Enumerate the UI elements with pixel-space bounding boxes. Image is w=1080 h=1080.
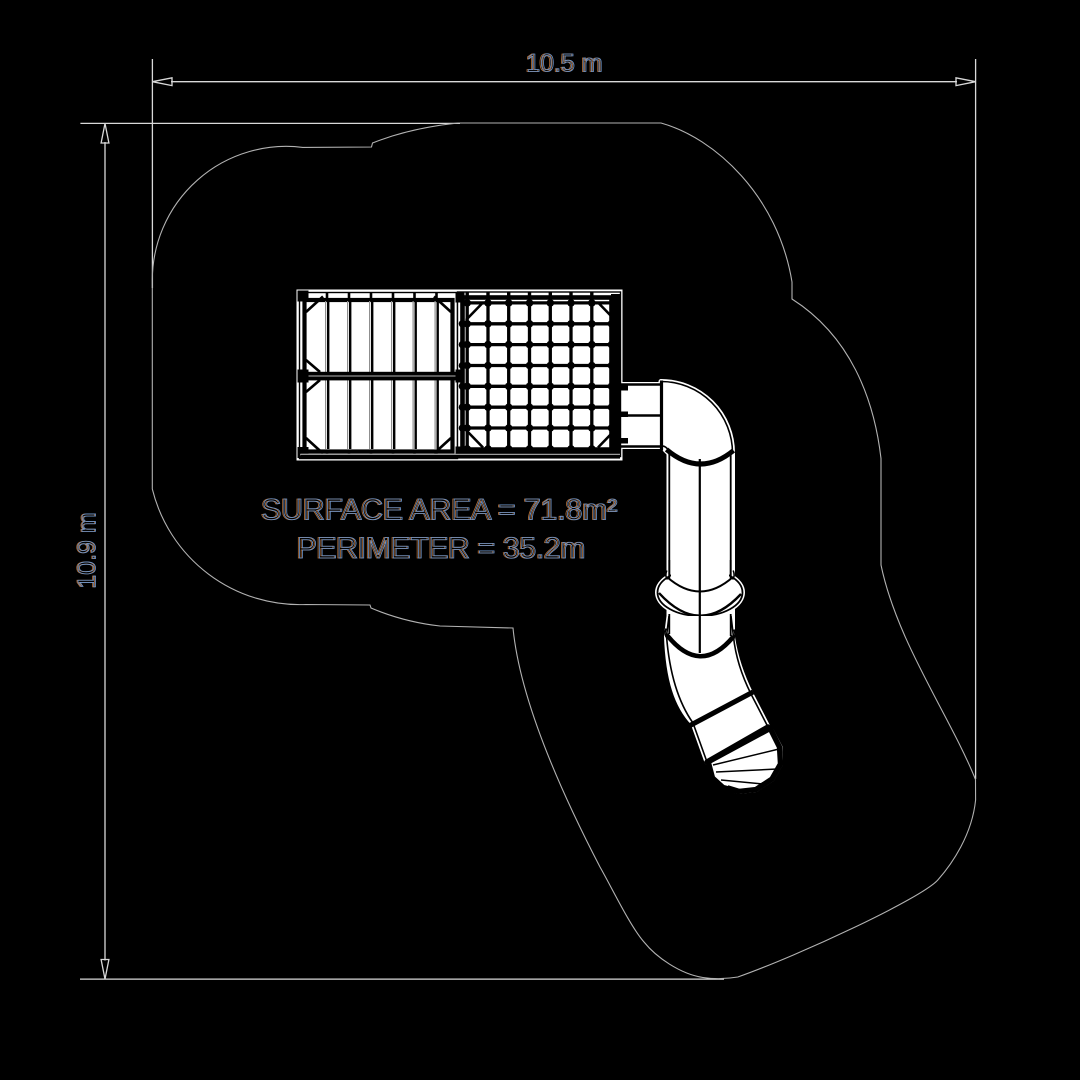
svg-text:PERIMETER = 35.2m: PERIMETER = 35.2m [297,532,585,565]
svg-text:SURFACE AREA = 71.8m²: SURFACE AREA = 71.8m² [262,494,618,527]
svg-text:10.9 m: 10.9 m [74,512,102,588]
svg-text:10.5 m: 10.5 m [526,50,602,78]
